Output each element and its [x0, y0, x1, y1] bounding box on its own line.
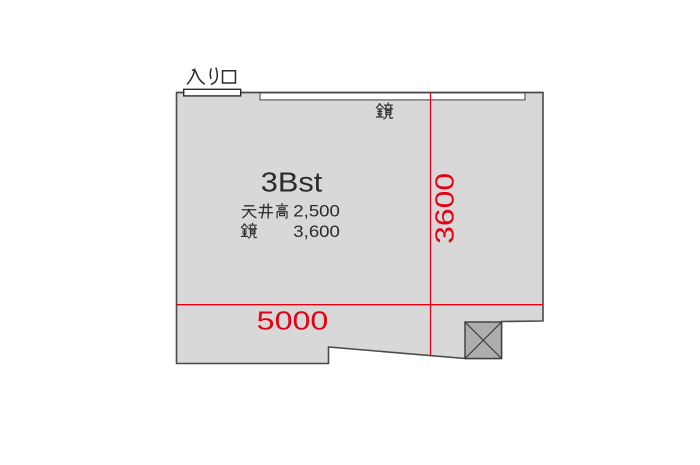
svg-text:3600: 3600: [430, 173, 460, 244]
svg-text:3,600: 3,600: [293, 222, 340, 241]
svg-text:2,500: 2,500: [293, 201, 340, 220]
svg-text:3Bst: 3Bst: [261, 166, 323, 197]
svg-text:5000: 5000: [257, 305, 329, 335]
